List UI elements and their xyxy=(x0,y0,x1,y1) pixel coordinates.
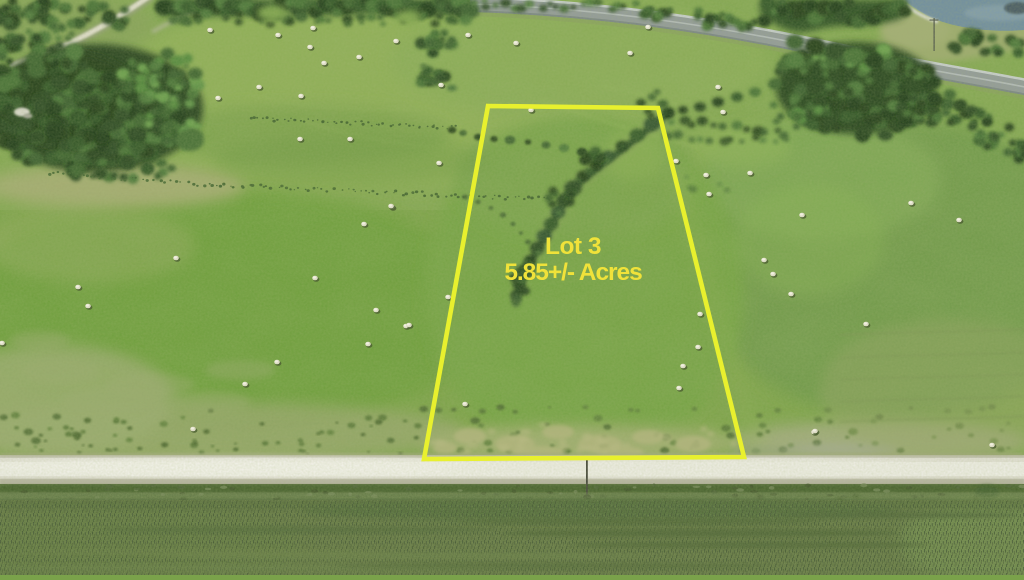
svg-text:Lot 3: Lot 3 xyxy=(545,233,601,260)
svg-text:5.85+/- Acres: 5.85+/- Acres xyxy=(504,259,642,286)
